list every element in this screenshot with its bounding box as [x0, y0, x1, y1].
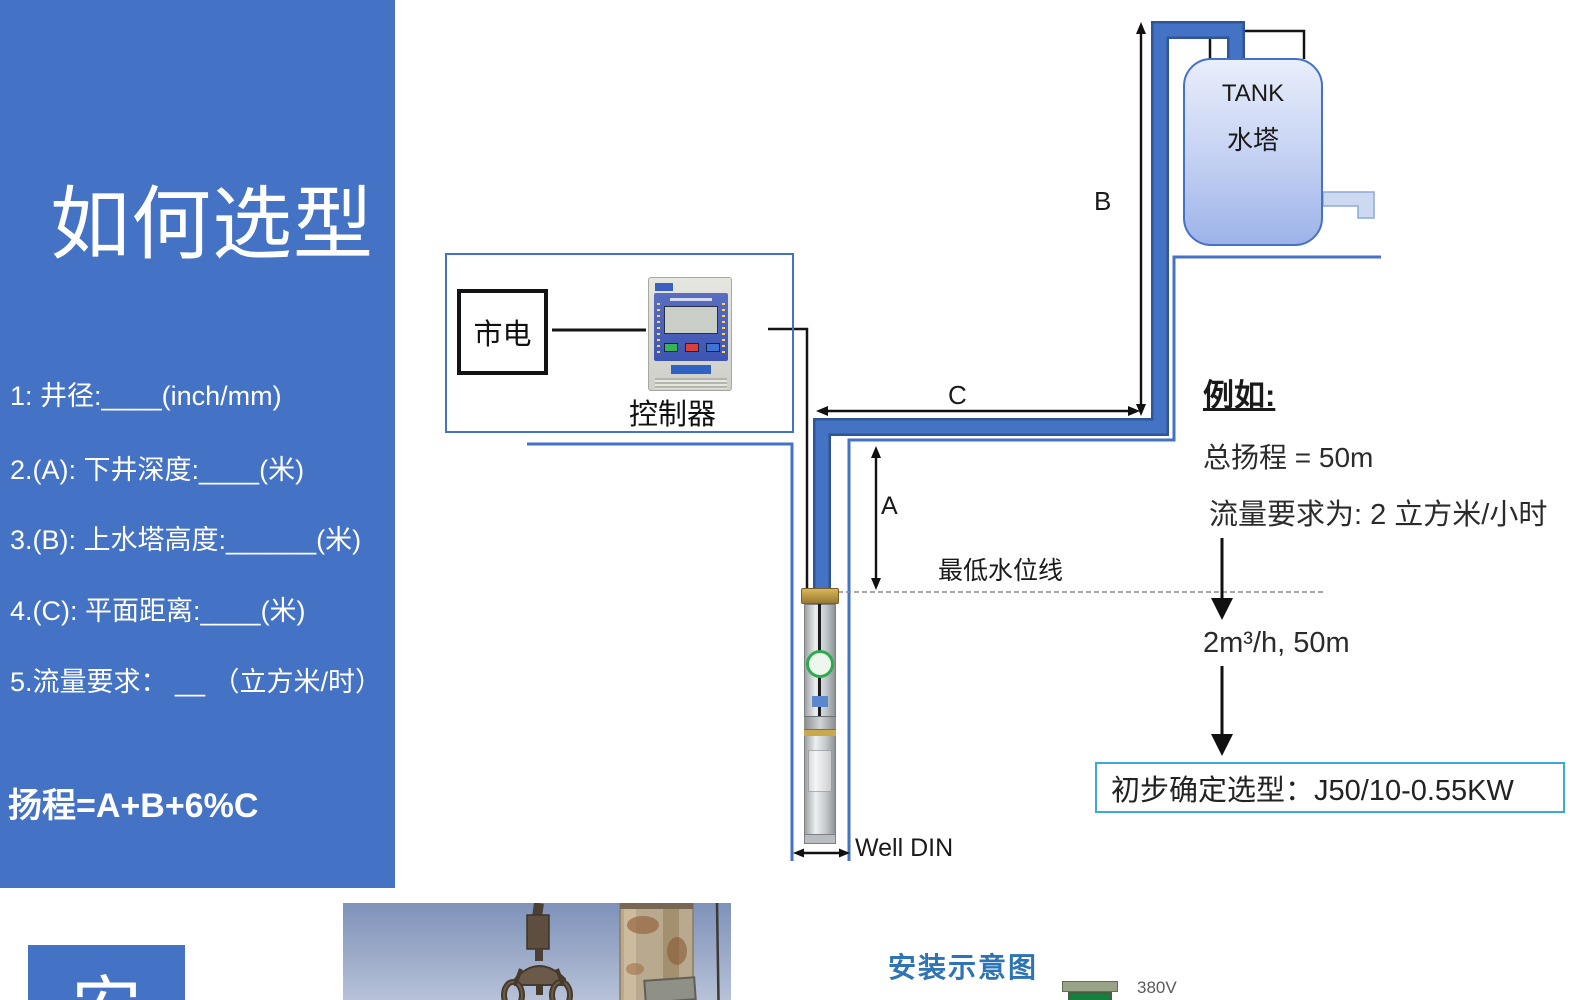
tank-label-en: TANK	[1185, 80, 1321, 108]
sidebar-item-tower-height: 3.(B): 上水塔高度:______(米)	[10, 518, 361, 557]
controller-button-red	[685, 343, 699, 352]
water-level-label: 最低水位线	[938, 551, 1063, 587]
mains-power-label: 市电	[473, 311, 531, 353]
dim-b-arrow-top	[1136, 22, 1146, 34]
photo-cable	[717, 903, 719, 1000]
sidebar-item-flow-requirement: 5.流量要求： __ （立方米/时）	[10, 660, 382, 699]
controller-vents	[655, 378, 727, 389]
photo-hoist-clamp	[527, 915, 549, 949]
example-spec: 2m³/h, 50m	[1203, 627, 1350, 660]
controller-top-tab	[655, 283, 673, 291]
controller-label: 控制器	[629, 391, 716, 433]
controller-title-line	[670, 298, 712, 301]
dim-c-label: C	[948, 380, 967, 411]
mains-power-box: 市电	[457, 289, 548, 375]
power-box-body	[1068, 992, 1112, 1000]
install-diagram-heading: 安装示意图	[888, 946, 1038, 986]
sidebar: 如何选型 1: 井径:____(inch/mm) 2.(A): 下井深度:___…	[0, 0, 395, 888]
pump-controller-device	[648, 277, 732, 391]
dim-a-label: A	[881, 492, 898, 521]
controller-button-green	[664, 343, 678, 352]
controller-button-blue	[706, 343, 720, 352]
controller-brand-strip	[671, 365, 711, 374]
dim-c-arrow-left	[816, 406, 828, 416]
photo-graphic	[343, 903, 731, 1000]
example-flow-requirement: 流量要求为: 2 立方米/小时	[1209, 491, 1547, 533]
controller-front-panel	[654, 293, 728, 361]
controller-led-column-right	[722, 303, 725, 353]
page-title: 如何选型	[50, 160, 374, 276]
pump-gold-ring	[804, 730, 836, 736]
dim-b-label: B	[1094, 186, 1111, 217]
water-tank: TANK 水塔	[1183, 58, 1323, 246]
example-arrow-2-head	[1211, 734, 1233, 756]
voltage-label: 380V	[1137, 978, 1177, 998]
sidebar-item-plane-distance: 4.(C): 平面距离:____(米)	[10, 589, 306, 628]
section2-label: 安	[28, 951, 185, 1000]
photo-plate	[644, 977, 695, 1000]
pump-blue-label	[812, 696, 828, 707]
pump-spec-label	[808, 750, 832, 792]
controller-led-column-left	[657, 303, 660, 353]
sidebar-item-well-diameter: 1: 井径:____(inch/mm)	[10, 374, 282, 413]
tank-outlet-pipe	[1323, 192, 1374, 218]
head-formula: 扬程=A+B+6%C	[8, 778, 258, 827]
dim-a-arrow-top	[871, 446, 881, 458]
pump-bottom-cap	[804, 834, 836, 844]
selection-result-text: 初步确定选型：J50/10-0.55KW	[1111, 767, 1514, 809]
power-box-cap	[1062, 981, 1118, 992]
example-total-head: 总扬程 = 50m	[1203, 436, 1373, 476]
section2-box: 安	[28, 945, 185, 1000]
submersible-pump	[801, 588, 839, 856]
ground-line-left-and-well-left-wall	[527, 444, 792, 861]
installation-photo	[343, 903, 731, 1000]
dim-a-arrow-bottom	[871, 578, 881, 590]
tank-label-zh: 水塔	[1185, 120, 1321, 157]
pump-strainer-band	[804, 716, 836, 730]
example-heading: 例如:	[1203, 370, 1275, 415]
well-diameter-label: Well DIN	[855, 834, 953, 863]
slide: 如何选型 1: 井径:____(inch/mm) 2.(A): 下井深度:___…	[0, 0, 1580, 1000]
sidebar-item-well-depth: 2.(A): 下井深度:____(米)	[10, 448, 304, 487]
example-arrow-1-head	[1211, 598, 1233, 620]
selection-result-box: 初步确定选型：J50/10-0.55KW	[1095, 762, 1565, 813]
controller-screen	[664, 306, 718, 334]
pump-outlet-fitting	[801, 588, 839, 604]
pump-badge-icon	[806, 650, 834, 678]
